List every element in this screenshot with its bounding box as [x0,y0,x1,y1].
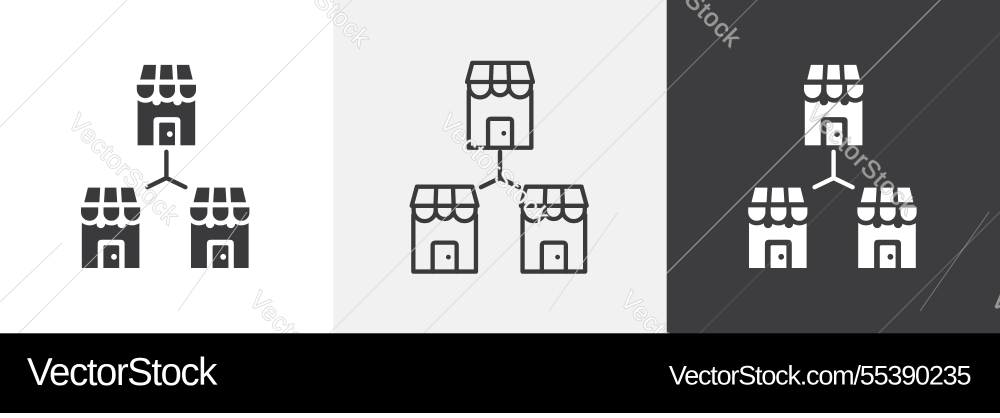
svg-text:VectorStock: VectorStock [27,351,218,394]
svg-text:VectorStock.com/55390235: VectorStock.com/55390235 [669,361,971,391]
